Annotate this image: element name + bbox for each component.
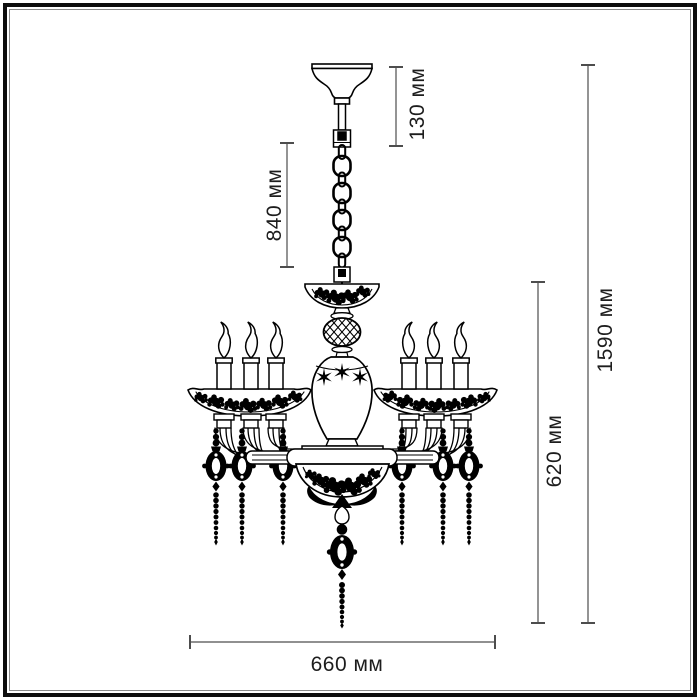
- chain: [334, 145, 351, 285]
- dim-overall-height-label: 1590 мм: [594, 288, 617, 373]
- dim-canopy-section: [389, 67, 403, 146]
- center-hub: [246, 446, 439, 466]
- dim-body-height-label: 620 мм: [543, 415, 566, 488]
- bottom-finial: [307, 486, 377, 629]
- left-arm-assembly: [188, 322, 316, 546]
- dim-canopy-section-label: 130 мм: [406, 68, 429, 141]
- dim-overall-width-label: 660 мм: [311, 653, 384, 676]
- technical-drawing-page: 130 мм 840 мм 1590 мм 620 мм 660 мм: [0, 0, 700, 700]
- lattice-ball: [296, 316, 388, 357]
- dim-overall-height: [581, 65, 595, 623]
- vase-body: [312, 357, 372, 446]
- top-bowl: [305, 284, 379, 319]
- hanging-rod: [334, 104, 351, 147]
- dim-chain-section-label: 840 мм: [263, 169, 286, 242]
- dim-overall-width: [190, 635, 495, 649]
- right-arm-assembly: [369, 322, 497, 546]
- chandelier-diagram: 130 мм 840 мм 1590 мм 620 мм 660 мм: [0, 0, 700, 700]
- ceiling-canopy: [312, 64, 372, 104]
